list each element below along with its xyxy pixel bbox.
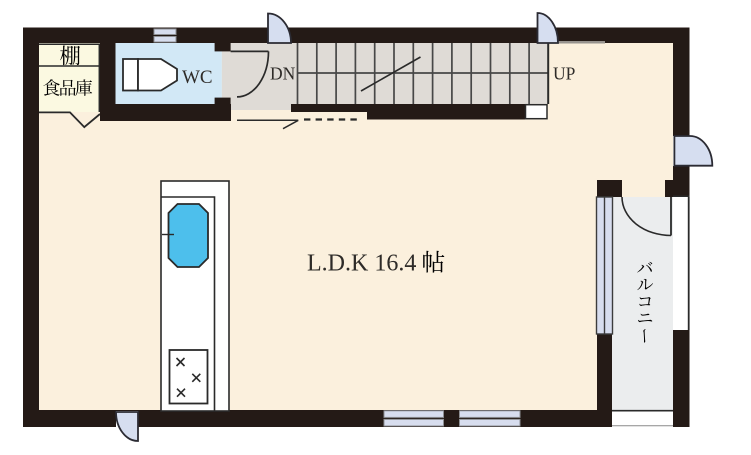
svg-text:UP: UP — [553, 64, 576, 84]
svg-text:WC: WC — [182, 67, 213, 88]
svg-text:L.D.K 16.4: L.D.K 16.4 — [307, 251, 416, 277]
svg-text:DN: DN — [270, 64, 296, 84]
